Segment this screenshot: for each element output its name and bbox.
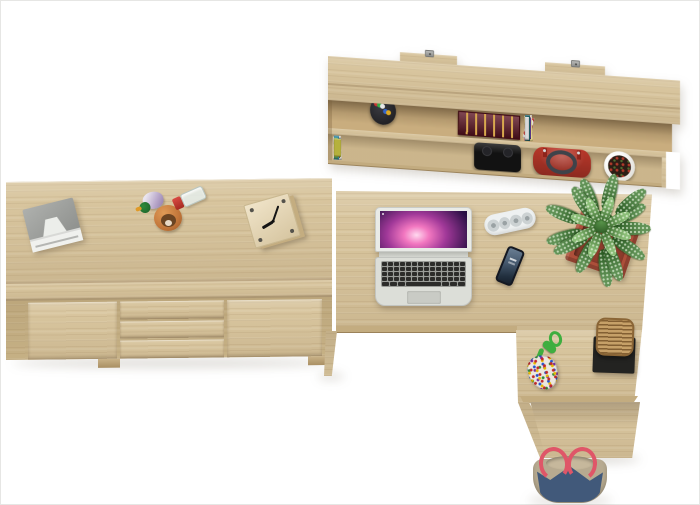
sideboard-door-right xyxy=(227,299,322,357)
key xyxy=(442,262,447,266)
laptop-base xyxy=(375,257,472,306)
key xyxy=(382,272,387,276)
office-furniture-scene xyxy=(0,0,700,505)
tote-bag xyxy=(531,447,609,505)
laptop-trackpad xyxy=(407,291,441,304)
key xyxy=(436,262,441,266)
key xyxy=(442,282,449,286)
key xyxy=(460,272,465,276)
keyboard-row xyxy=(382,267,465,271)
desk-left-panel xyxy=(324,331,337,376)
background-notch xyxy=(666,152,680,190)
sideboard-door-left xyxy=(28,302,117,360)
sideboard-drawer xyxy=(120,320,224,339)
dog-muzzle xyxy=(165,220,172,226)
black-case xyxy=(474,142,521,172)
key xyxy=(394,267,399,271)
sideboard-drawer xyxy=(120,340,224,359)
key xyxy=(436,277,441,281)
key xyxy=(436,267,441,271)
sideboard-drawer-stack xyxy=(120,300,224,358)
clock-screw xyxy=(249,208,254,213)
sideboard-leg xyxy=(98,359,120,368)
clock-center-pin xyxy=(271,219,275,223)
key xyxy=(388,262,393,266)
keyboard-row xyxy=(382,282,465,286)
key xyxy=(400,262,405,266)
clock-screw xyxy=(258,238,263,243)
return-front-edge xyxy=(520,396,638,403)
pen-cup xyxy=(370,100,396,126)
mount-bracket-icon xyxy=(571,60,580,68)
key xyxy=(412,277,417,281)
key xyxy=(454,277,459,281)
key xyxy=(406,262,411,266)
key xyxy=(448,277,453,281)
key xyxy=(382,277,387,281)
key xyxy=(382,267,387,271)
key xyxy=(398,282,405,286)
key xyxy=(430,262,435,266)
key xyxy=(424,267,429,271)
key xyxy=(388,272,393,276)
key xyxy=(412,267,417,271)
key xyxy=(430,267,435,271)
menu-bar-dot xyxy=(382,213,384,215)
key xyxy=(394,277,399,281)
key xyxy=(460,277,465,281)
key xyxy=(454,267,459,271)
pen-icon xyxy=(380,104,385,109)
key xyxy=(454,262,459,266)
key xyxy=(400,272,405,276)
key xyxy=(424,277,429,281)
spacebar xyxy=(406,282,441,286)
key xyxy=(460,267,465,271)
key xyxy=(460,262,465,266)
key xyxy=(394,272,399,276)
speaker-grille-icon xyxy=(509,213,523,227)
key xyxy=(412,262,417,266)
book-spine xyxy=(525,116,529,139)
book-spine xyxy=(334,138,341,156)
key xyxy=(424,262,429,266)
key xyxy=(442,272,447,276)
bead-pouch xyxy=(523,351,562,394)
key xyxy=(458,282,465,286)
key xyxy=(390,282,397,286)
key xyxy=(424,272,429,276)
key xyxy=(436,272,441,276)
laptop-wallpaper xyxy=(380,211,467,248)
key xyxy=(382,282,389,286)
sideboard-drawer xyxy=(120,300,224,319)
key xyxy=(400,277,405,281)
key xyxy=(442,267,447,271)
handbag-buckle xyxy=(577,151,580,154)
handbag-buckle xyxy=(543,149,546,152)
perfume-glass xyxy=(179,185,207,208)
antique-red-book xyxy=(458,111,520,140)
key xyxy=(430,277,435,281)
laptop-display xyxy=(375,207,472,252)
wall-bookshelf xyxy=(328,56,680,189)
key xyxy=(400,267,405,271)
key xyxy=(406,267,411,271)
sideboard-front xyxy=(6,280,332,360)
keyboard-row xyxy=(382,262,465,266)
key xyxy=(418,277,423,281)
key xyxy=(388,267,393,271)
pen-icon xyxy=(386,110,391,115)
key xyxy=(448,262,453,266)
key xyxy=(394,262,399,266)
lockscreen-text xyxy=(509,257,516,261)
wicker-stool-seat xyxy=(595,317,634,356)
key xyxy=(430,272,435,276)
potted-plant xyxy=(556,184,646,268)
laptop-keyboard xyxy=(381,261,466,287)
keyboard-row xyxy=(382,277,465,281)
key xyxy=(382,262,387,266)
red-handbag xyxy=(533,146,591,178)
key xyxy=(442,277,447,281)
key xyxy=(418,262,423,266)
bookshelf-left-edge xyxy=(328,100,332,160)
keyboard-row xyxy=(382,272,465,276)
sideboard-rail xyxy=(6,280,332,301)
clock-screw xyxy=(290,228,295,233)
speaker-grille-icon xyxy=(520,211,534,225)
key xyxy=(454,272,459,276)
key xyxy=(406,277,411,281)
key xyxy=(412,272,417,276)
key xyxy=(418,267,423,271)
clock-screw xyxy=(281,199,286,204)
key xyxy=(448,267,453,271)
mount-bracket-icon xyxy=(425,50,434,58)
handbag-handle xyxy=(546,149,577,175)
laptop xyxy=(375,207,472,306)
key xyxy=(448,272,453,276)
key xyxy=(388,277,393,281)
bead-pouch-group xyxy=(528,331,574,391)
key xyxy=(450,282,457,286)
key xyxy=(406,272,411,276)
desk-front-edge xyxy=(336,326,517,333)
speaker-grille-icon xyxy=(486,218,500,232)
key xyxy=(418,272,423,276)
